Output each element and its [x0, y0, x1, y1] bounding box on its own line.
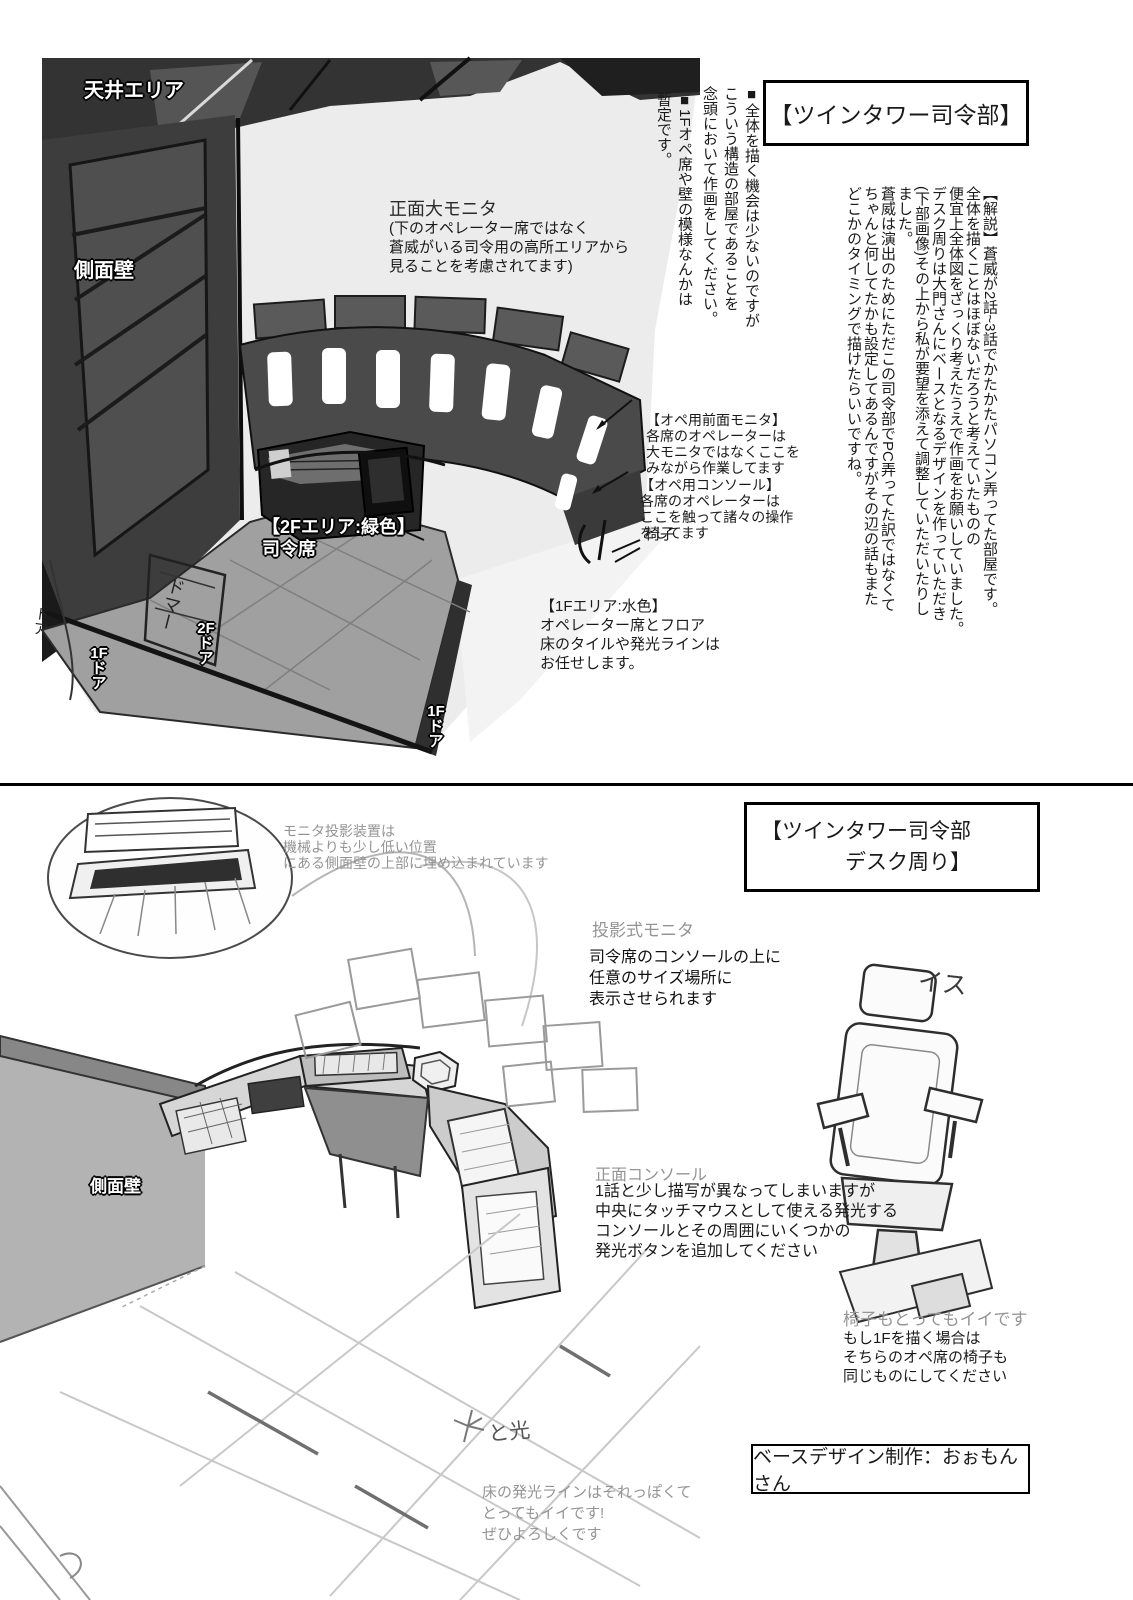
area-2f-label: 【2Fエリア:緑色】 司令席	[262, 516, 415, 560]
console-desk-sketch	[160, 1044, 560, 1308]
note-provisional: ■1Fオペ席や壁の模様なんかは 暫定です。	[653, 92, 695, 374]
op-front-monitor-note: 【オペ用前面モニタ】 各席のオペレーターは 大モニタではなくここを みながら作業…	[646, 412, 800, 476]
chair-note-title: 椅子もとってもイイです	[843, 1305, 1027, 1330]
chair-sketch-label: イス	[916, 962, 969, 1003]
side-wall-label: 側面壁	[74, 254, 134, 283]
projection-monitor-title: 投影式モニタ	[592, 916, 694, 941]
area-1f-note: 【1Fエリア:水色】 オペレーター席とフロア 床のタイルや発光ラインは お任せし…	[540, 597, 720, 673]
door-1f-left-label: 1F ド ア	[86, 646, 112, 691]
main-monitor-title: 正面大モニタ	[389, 195, 497, 221]
top-title-box: 【ツインタワー司令部】	[763, 80, 1029, 146]
front-console-note: 1話と少し描写が異なってしまいますが 中央にタッチマウスとして使える発光する コ…	[595, 1182, 898, 1262]
side-wall-bottom-label: 側面壁	[90, 1172, 141, 1197]
bottom-title-box: 【ツインタワー司令部 デスク周り】	[744, 802, 1040, 892]
ceiling-area-label: 天井エリア	[84, 74, 184, 103]
floor-line-note: 床の発光ラインはそれっぽくて とってもイイです! ぜひよろしくです	[482, 1482, 692, 1545]
projector-device-note: モニタ投影装置は 機械よりも少し低い位置 にある側面壁の上部に埋め込まれています	[283, 823, 549, 871]
commentary-block: 【解説】蒼威が2話~3話でかたかたパソコン弄ってた部屋です。 全体を描くことはほ…	[845, 186, 998, 674]
chair-label: 椅子	[645, 523, 675, 544]
light-sketch-label: と光	[487, 1414, 532, 1448]
concept-design-sheet: 【ツインタワー司令部】 ■全体を描く機会は少ないのですが こういう構造の部屋であ…	[0, 0, 1133, 1600]
bottom-title: 【ツインタワー司令部 デスク周り】	[761, 816, 971, 878]
chair-note: もし1Fを描く場合は そちらのオペ席の椅子も 同じものにしてください	[843, 1329, 1008, 1386]
top-title: 【ツインタワー司令部】	[770, 96, 1023, 130]
door-sketch-left-label: ドア	[28, 605, 53, 638]
credit-text: ベースデザイン制作：おぉもんさん	[753, 1442, 1028, 1496]
door-1f-bottom-label: 1F ド ア	[423, 704, 449, 749]
projection-monitor-note: 司令席のコンソールの上に 任意のサイズ場所に 表示させられます	[589, 947, 781, 1010]
main-monitor-note: (下のオペレーター席ではなく 蒼威がいる司令用の高所エリアから 見ることを考慮さ…	[389, 219, 629, 276]
credit-box: ベースデザイン制作：おぉもんさん	[751, 1444, 1030, 1494]
door-2f-label: 2F ド ア	[191, 621, 221, 666]
chair-sketch	[818, 964, 992, 1322]
note-structure: ■全体を描く機会は少ないのですが こういう構造の部屋であることを 念頭において作…	[699, 86, 762, 408]
